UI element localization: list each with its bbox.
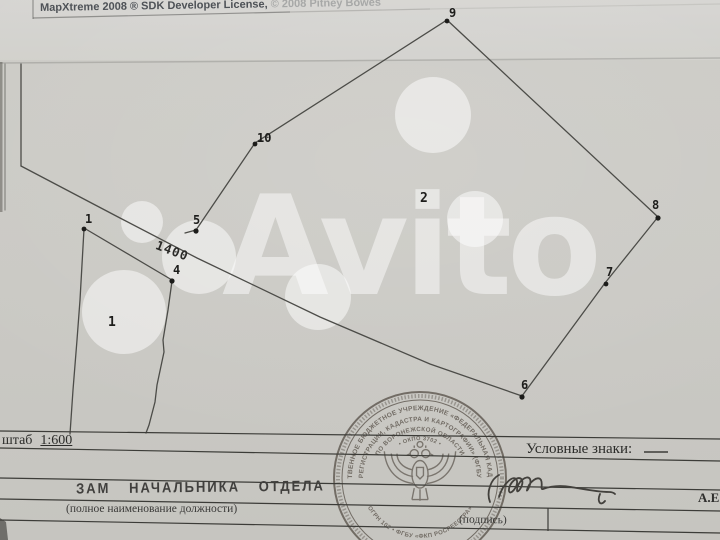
legend-label: Условные знаки: <box>526 441 632 458</box>
parcel-2-label: 2 <box>420 192 428 205</box>
vertex-label-7: 7 <box>606 266 613 278</box>
job-title-caption: (полное наименование должности) <box>66 503 237 515</box>
vertex-label-4: 4 <box>173 264 180 276</box>
vertex-label-10: 10 <box>257 132 271 144</box>
vertex-points <box>82 19 661 400</box>
signature-caption: (подпись) <box>459 514 507 527</box>
parcel-1-label: 1 <box>108 316 116 329</box>
title-faded: © 2008 Pitney Bowes <box>268 0 381 10</box>
vertex-label-1: 1 <box>85 213 92 225</box>
signer-initials: А.Е <box>698 490 719 506</box>
scale-row: штаб1:600 <box>2 433 72 449</box>
vertex-label-6: 6 <box>521 379 528 391</box>
vertex-label-9: 9 <box>449 7 456 19</box>
double-eagle-emblem <box>384 442 455 501</box>
scanned-cadastral-plan: Avito <box>0 0 720 540</box>
scale-value: 1:600 <box>40 433 72 448</box>
parcel-boundaries <box>5 20 658 434</box>
stamp-bottom-arc-text: ОГРН 102 • ФГБУ «ФКП РОСРЕЕСТРА» <box>366 505 474 540</box>
job-title-text: ЗАМ НАЧАЛЬНИКА ОТДЕЛА <box>76 477 325 497</box>
scale-label: штаб <box>2 433 32 448</box>
vertex-label-5: 5 <box>193 214 200 226</box>
signature <box>489 475 615 503</box>
vertex-label-8: 8 <box>652 199 659 211</box>
svg-text:ОГРН 102 • ФГБУ «ФКП РОСРЕЕСТР: ОГРН 102 • ФГБУ «ФКП РОСРЕЕСТРА» <box>366 505 474 540</box>
